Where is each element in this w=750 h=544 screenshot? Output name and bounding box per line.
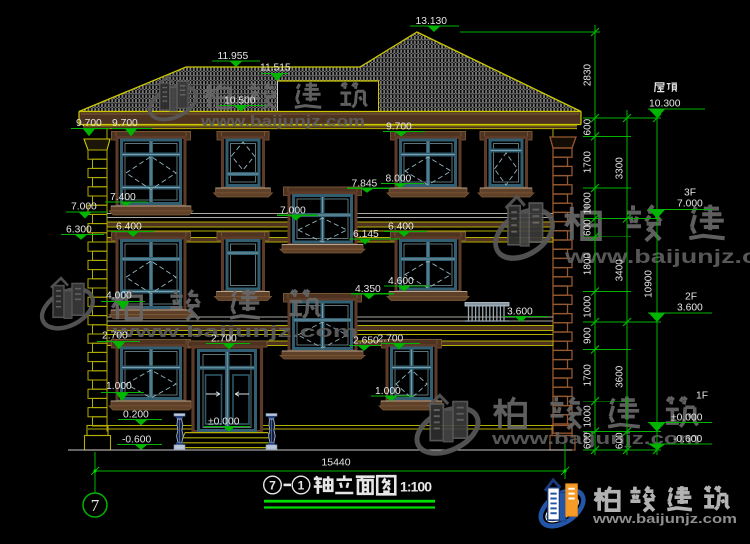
- svg-text:1700: 1700: [583, 151, 594, 174]
- svg-text:www.baijunjz.com: www.baijunjz.com: [592, 511, 737, 526]
- svg-text:0.200: 0.200: [123, 410, 149, 421]
- svg-text:11.955: 11.955: [218, 51, 249, 62]
- svg-text:1000: 1000: [583, 295, 594, 318]
- svg-text:600: 600: [583, 219, 594, 236]
- svg-text:7.000: 7.000: [677, 199, 703, 210]
- svg-text:2F: 2F: [685, 292, 697, 303]
- svg-text:600: 600: [615, 432, 626, 449]
- svg-text:4.600: 4.600: [388, 276, 414, 287]
- svg-text:1700: 1700: [583, 364, 594, 387]
- svg-text:1.000: 1.000: [106, 381, 132, 392]
- svg-text:900: 900: [583, 327, 594, 344]
- svg-text:13.130: 13.130: [416, 16, 448, 27]
- svg-text:8.000: 8.000: [386, 174, 412, 185]
- svg-text:7: 7: [91, 496, 100, 515]
- svg-text:3600: 3600: [615, 365, 626, 388]
- svg-text:9.700: 9.700: [386, 122, 412, 133]
- svg-text:1800: 1800: [583, 253, 594, 276]
- svg-text:11.515: 11.515: [260, 63, 291, 74]
- svg-text:9.700: 9.700: [112, 118, 138, 129]
- svg-text:10.500: 10.500: [224, 96, 256, 107]
- svg-text:10900: 10900: [644, 270, 655, 298]
- svg-text:3400: 3400: [615, 259, 626, 282]
- svg-text:www.baijunjz.com: www.baijunjz.com: [200, 113, 365, 130]
- svg-text:1000: 1000: [583, 405, 594, 428]
- svg-text:3F: 3F: [684, 188, 696, 199]
- svg-text:1.000: 1.000: [375, 386, 401, 397]
- svg-text:600: 600: [583, 118, 594, 135]
- svg-text:1:100: 1:100: [400, 479, 432, 495]
- svg-text:4.000: 4.000: [106, 291, 132, 302]
- svg-text:-0.600: -0.600: [673, 434, 702, 445]
- svg-text:3.600: 3.600: [507, 307, 533, 318]
- svg-text:9.700: 9.700: [76, 118, 102, 129]
- svg-text:1F: 1F: [696, 391, 708, 402]
- svg-text:3300: 3300: [615, 157, 626, 180]
- svg-text:1000: 1000: [583, 192, 594, 215]
- svg-text:2830: 2830: [583, 63, 594, 86]
- svg-text:3.600: 3.600: [677, 303, 703, 314]
- svg-text:10.300: 10.300: [649, 99, 681, 110]
- svg-text:1: 1: [298, 478, 305, 492]
- svg-text:15440: 15440: [321, 457, 350, 469]
- svg-text:7.000: 7.000: [71, 202, 97, 213]
- svg-text:2.700: 2.700: [102, 331, 128, 342]
- svg-text:600: 600: [583, 432, 594, 449]
- svg-text:7: 7: [269, 478, 276, 492]
